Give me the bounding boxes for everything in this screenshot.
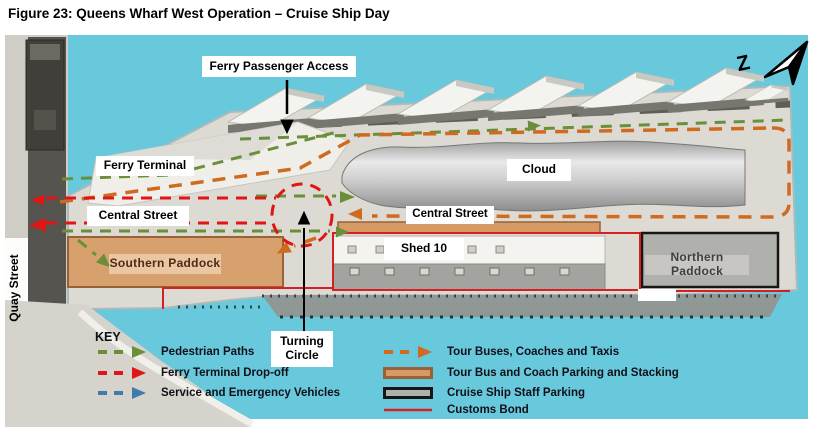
legend-item-staff-parking: Cruise Ship Staff Parking: [382, 385, 585, 401]
dashed-arrow-icon: [96, 346, 148, 358]
legend-item-bus-parking: Tour Bus and Coach Parking and Stacking: [382, 365, 679, 381]
label-turning-circle: Turning Circle: [271, 331, 333, 367]
shed-10-building: [333, 236, 605, 290]
parking-swatch-icon: [382, 386, 434, 400]
legend-item-service-vehicles: Service and Emergency Vehicles: [96, 385, 340, 401]
label-ferry-passenger-access: Ferry Passenger Access: [202, 56, 356, 77]
dashed-arrow-icon: [382, 346, 434, 358]
label-central-street-lower: Central Street: [406, 206, 494, 224]
label-ferry-terminal: Ferry Terminal: [96, 156, 194, 176]
label-southern-paddock: Southern Paddock: [109, 254, 221, 274]
label-central-street-upper: Central Street: [87, 206, 189, 226]
dashed-arrow-icon: [96, 367, 148, 379]
customs-gap-patch: [638, 289, 676, 301]
label-northern-paddock: Northern Paddock: [645, 255, 749, 275]
label-shed-10: Shed 10: [384, 238, 464, 260]
legend-title: KEY: [95, 330, 121, 344]
legend-item-pedestrian: Pedestrian Paths: [96, 344, 254, 360]
legend-item-tour-buses: Tour Buses, Coaches and Taxis: [382, 344, 619, 360]
parking-swatch-icon: [382, 366, 434, 380]
label-cloud: Cloud: [507, 159, 571, 181]
dashed-arrow-icon: [96, 387, 148, 399]
line-swatch-icon: [382, 404, 434, 416]
label-quay-street: Quay Street: [4, 240, 26, 336]
legend-item-ferry-dropoff: Ferry Terminal Drop-off: [96, 365, 289, 381]
legend-item-customs-bond: Customs Bond: [382, 402, 529, 418]
figure-23: Figure 23: Queens Wharf West Operation –…: [0, 0, 815, 427]
